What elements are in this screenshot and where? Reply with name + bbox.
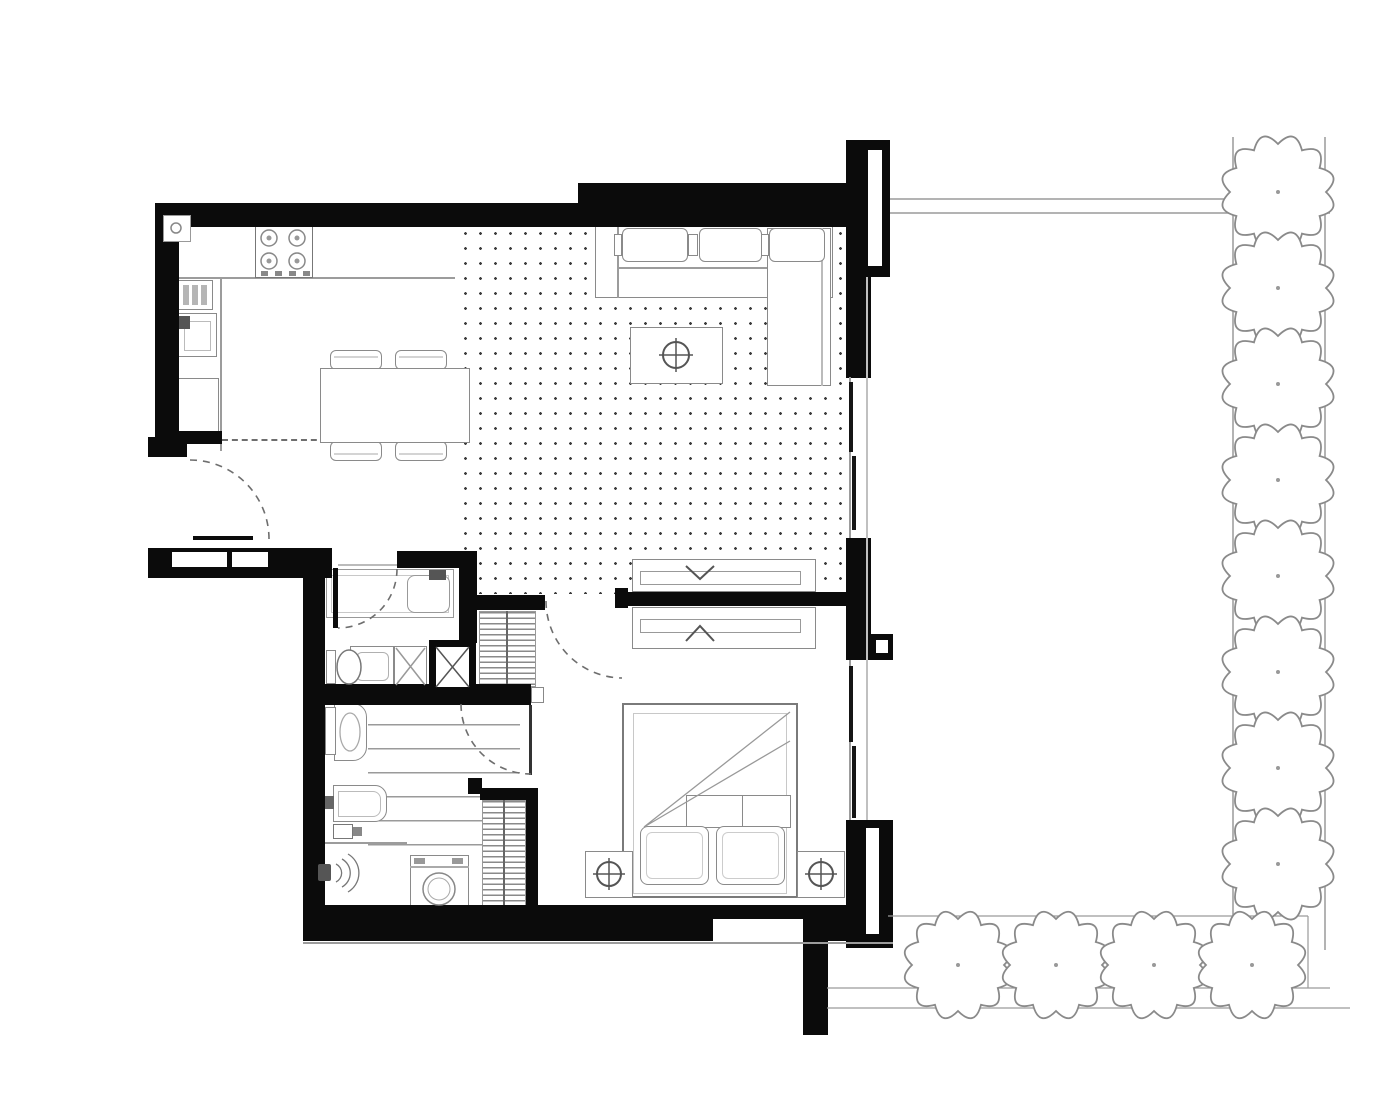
dining-table: [320, 368, 470, 443]
garden-boundary-lines: [827, 137, 1350, 1008]
dish-rack-bar: [192, 285, 198, 305]
bedroom-window-panel: [849, 666, 853, 742]
kitchen-tall-cabinet: [172, 378, 219, 432]
vanity-1-basin: [356, 652, 389, 681]
sofa-seat-line: [617, 267, 767, 269]
bedroom-door-arc: [546, 601, 622, 678]
wardrobe-2-cap: [468, 778, 482, 794]
dining-chair: [395, 350, 447, 370]
faucet-icon: [325, 796, 334, 809]
folded-duvet: [742, 795, 791, 828]
washbasin-2-basin: [338, 791, 381, 817]
tree-center-dot: [1152, 963, 1156, 967]
tree-icon: [1222, 328, 1333, 439]
door-threshold: [338, 564, 397, 566]
washing-machine-panel-line: [410, 866, 469, 868]
pier-window-slot: [868, 150, 882, 266]
tree-icon: [1222, 232, 1333, 343]
corner-shower: [394, 646, 427, 687]
service-shaft-inner: [436, 647, 469, 687]
stove: [255, 224, 313, 278]
wall-end-cap: [531, 687, 544, 703]
tree-icon: [1222, 808, 1333, 919]
sliding-unit-living-bar: [640, 571, 801, 585]
sofa-divider: [614, 234, 622, 256]
wall-top-kitchen: [155, 203, 578, 227]
tree-center-dot: [1276, 286, 1280, 290]
tree-icon: [1222, 520, 1333, 631]
tree-icon: [1222, 136, 1333, 247]
tree-icon: [1222, 712, 1333, 823]
folded-duvet: [686, 795, 743, 828]
sofa-divider: [688, 234, 698, 256]
sofa-cushion: [769, 228, 825, 262]
notch-slot: [876, 640, 888, 653]
entry-window-slot: [232, 552, 268, 567]
wall-above-wardrobe: [477, 595, 545, 610]
sofa-divider: [761, 234, 769, 256]
wall-living-bedroom: [620, 592, 846, 606]
nightstand-left: [585, 851, 633, 898]
tree-icon: [1199, 912, 1305, 1018]
bathtub-faucet-icon: [429, 570, 446, 580]
washer-control: [452, 858, 463, 864]
dining-chair: [330, 350, 382, 370]
entry-door-arc: [190, 460, 269, 539]
tree-icon: [1222, 616, 1333, 727]
entry-door-leaf: [193, 536, 253, 540]
bathroom-door-leaf: [333, 568, 338, 628]
living-window-panel: [849, 382, 853, 452]
tree-center-dot: [1276, 862, 1280, 866]
dining-chair: [330, 441, 382, 461]
wardrobe-2-rail: [503, 800, 505, 919]
valve-box: [333, 824, 353, 839]
wall-stub-bottom: [803, 935, 828, 1035]
shower-edge-line: [325, 842, 407, 844]
wall-top-living: [578, 183, 848, 227]
closet-door-leaf: [529, 705, 532, 775]
wardrobe-2-right-wall: [526, 788, 538, 922]
glass-outer-line: [866, 277, 868, 820]
tree-center-dot: [1276, 190, 1280, 194]
tree-icon: [1101, 912, 1207, 1018]
exterior-sill-line: [303, 942, 893, 944]
tree-center-dot: [1250, 963, 1254, 967]
kitchen-faucet-icon: [179, 316, 190, 329]
toilet-2-tank: [325, 707, 336, 755]
wall-bathroom-bottom: [320, 684, 531, 705]
wardrobe-1-rail: [506, 611, 508, 687]
wall-bathroom-right: [459, 551, 477, 643]
sofa-cushion: [699, 228, 762, 262]
tree-center-dot: [1276, 574, 1280, 578]
living-window-panel: [852, 456, 856, 530]
bottom-wall-recess: [713, 919, 803, 941]
sliding-unit-bedroom-bar: [640, 619, 801, 633]
bedroom-window-panel: [852, 746, 856, 818]
tree-center-dot: [956, 963, 960, 967]
pillow-inner: [646, 832, 703, 879]
tree-icon: [1222, 424, 1333, 535]
entry-window-slot: [172, 552, 227, 567]
tree-center-dot: [1276, 670, 1280, 674]
pillow-inner: [722, 832, 779, 879]
tree-center-dot: [1276, 478, 1280, 482]
wall-divider-cap: [615, 588, 628, 608]
tree-icon: [1003, 912, 1109, 1018]
toilet-2: [334, 703, 367, 761]
toilet-1-tank: [326, 650, 336, 684]
garden-trees: [905, 136, 1334, 1018]
floor-plan: [0, 0, 1394, 1100]
washer-control: [414, 858, 425, 864]
tree-center-dot: [1054, 963, 1058, 967]
wall-left-lower: [303, 548, 325, 941]
tree-icon: [905, 912, 1011, 1018]
corner-symbol-box: [163, 215, 191, 242]
dining-chair: [395, 441, 447, 461]
cabinet-end-panel: [168, 431, 222, 444]
nightstand-right: [797, 851, 845, 898]
dish-rack-bar: [183, 285, 189, 305]
valve-knob: [353, 827, 362, 836]
tree-center-dot: [1276, 766, 1280, 770]
tree-center-dot: [1276, 382, 1280, 386]
corner-window-slot: [866, 828, 879, 934]
kitchen-counter-edge-left: [220, 277, 222, 451]
bathtub-basin: [407, 575, 450, 613]
coffee-table: [630, 327, 723, 384]
sofa-cushion: [622, 228, 688, 262]
dish-rack-bar: [201, 285, 207, 305]
